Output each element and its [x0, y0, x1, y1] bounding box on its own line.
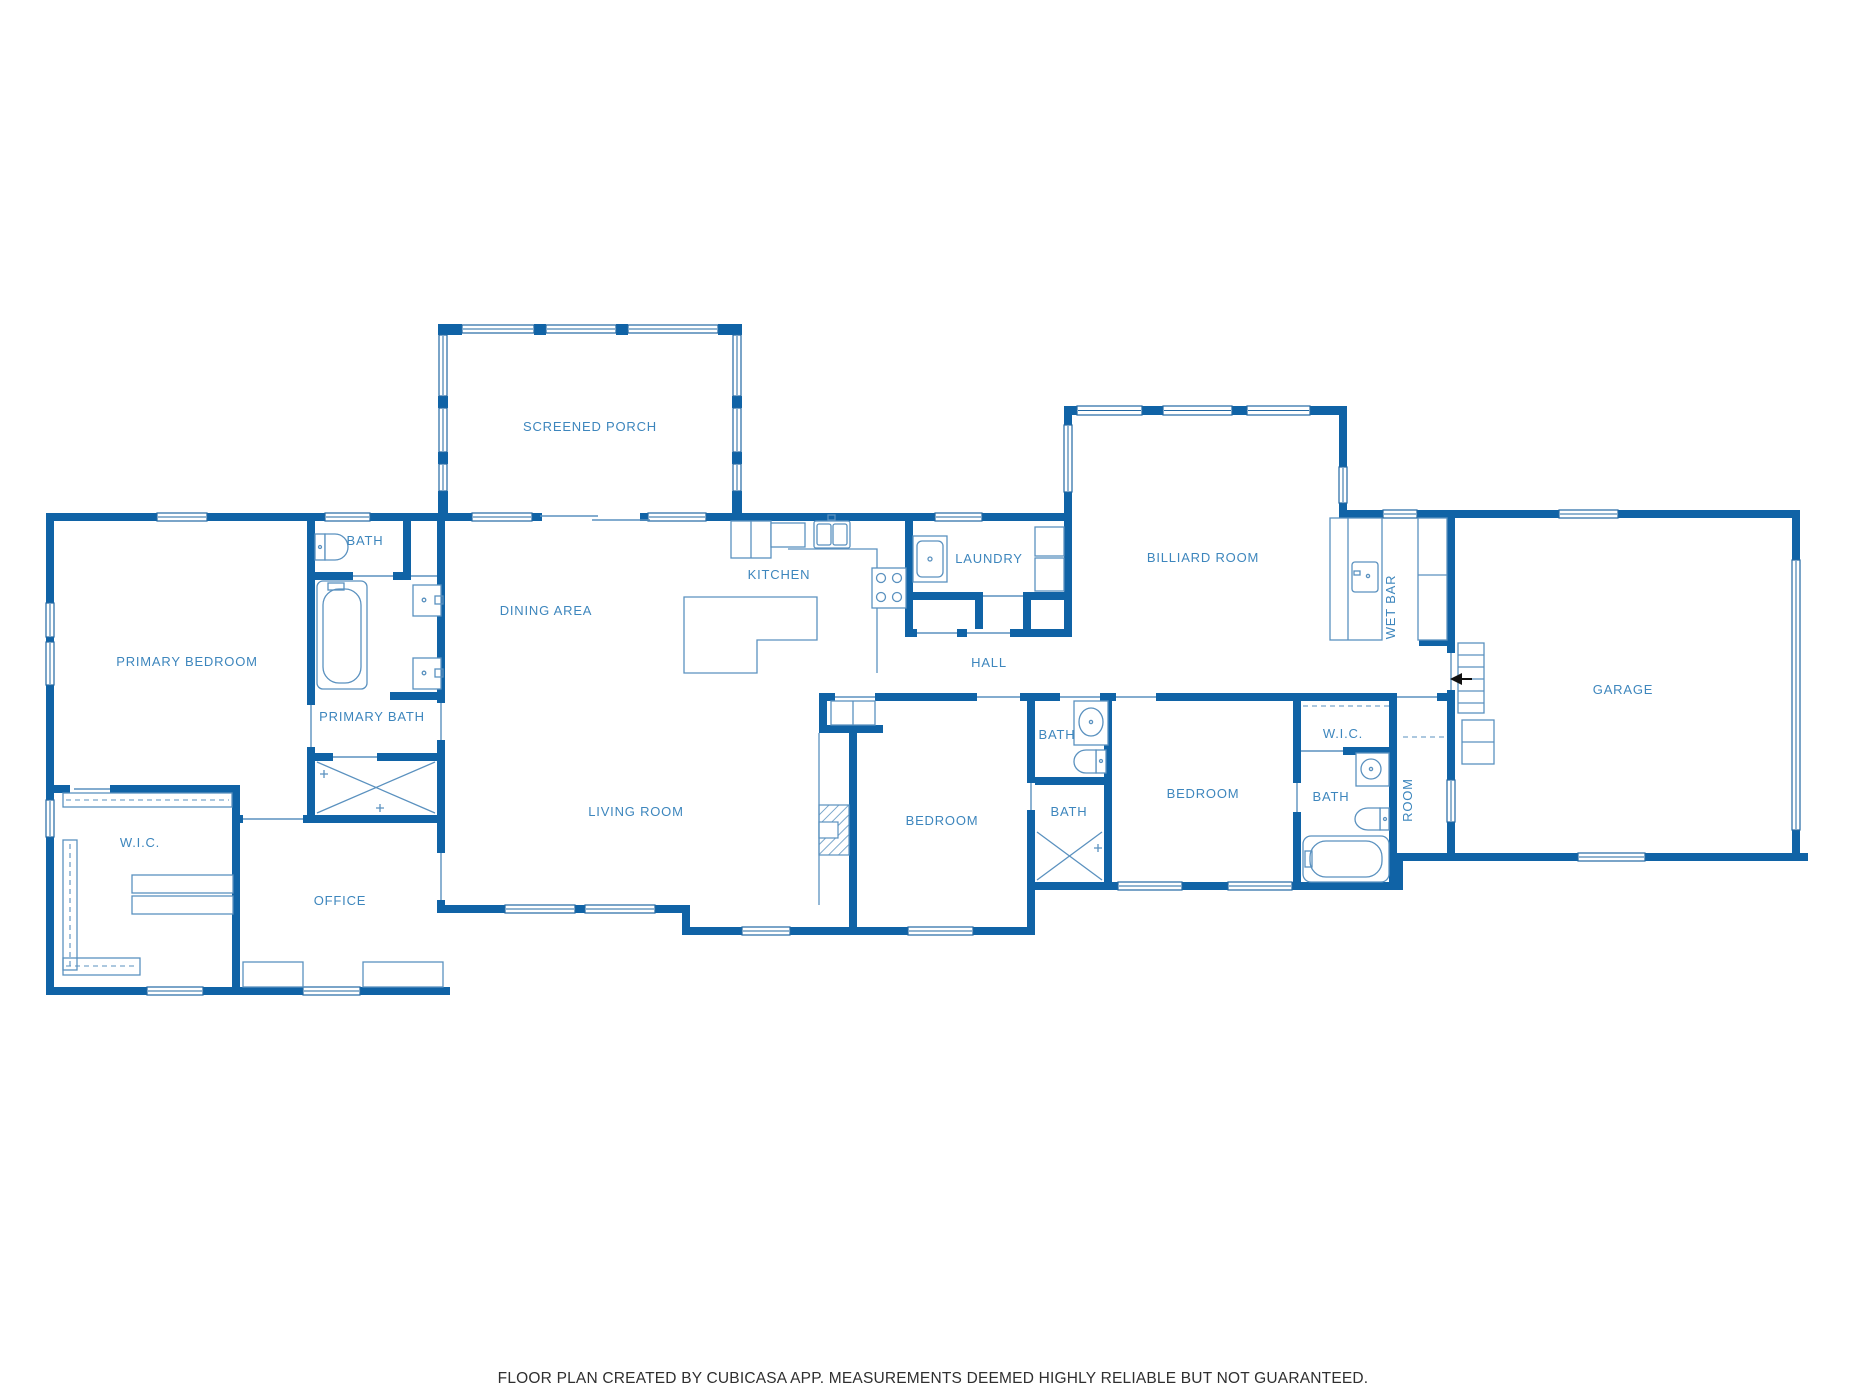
walls-layer [46, 324, 1808, 995]
wall-segment [46, 513, 54, 603]
room-label-wet-bar: WET BAR [1383, 575, 1398, 640]
wall-segment [403, 521, 411, 572]
wall-segment [975, 600, 983, 629]
room-label-garage: GARAGE [1593, 682, 1653, 697]
wall-segment [1064, 406, 1077, 415]
wall-segment [1645, 853, 1808, 861]
wall-segment [307, 521, 315, 705]
wall-segment [1347, 510, 1383, 518]
wall-segment [1100, 693, 1116, 701]
wall-segment [1156, 693, 1397, 701]
wall-segment [1403, 853, 1578, 861]
wall-segment [1310, 406, 1347, 415]
sink-icon [1356, 753, 1389, 786]
wall-segment [819, 725, 883, 733]
wall-segment [732, 396, 742, 408]
kitchen-counter [788, 549, 877, 568]
wall-segment [207, 513, 325, 521]
dryer-icon [1035, 527, 1064, 556]
wet-bar-cabinet [1418, 518, 1447, 640]
room-label-bath-hall: BATH [1039, 727, 1076, 742]
wall-segment [732, 452, 742, 464]
wall-segment [1292, 882, 1403, 890]
room-label-primary-bath: PRIMARY BATH [319, 709, 425, 724]
wall-segment [742, 513, 935, 521]
wall-segment [54, 785, 70, 793]
wall-segment [438, 324, 462, 335]
wall-segment [1064, 492, 1072, 521]
footer-disclaimer: FLOOR PLAN CREATED BY CUBICASA APP. MEAS… [498, 1370, 1369, 1387]
wall-segment [1142, 406, 1163, 415]
wall-segment [849, 733, 857, 935]
room-label-hall: HALL [971, 655, 1007, 670]
wall-segment [1417, 510, 1559, 518]
wall-segment [445, 905, 505, 913]
room-label-office: OFFICE [314, 893, 366, 908]
wall-segment [1293, 812, 1301, 890]
wall-segment [438, 396, 448, 408]
wet-bar-counter [1330, 518, 1382, 640]
wall-segment [1389, 701, 1397, 890]
wall-segment [1293, 701, 1301, 783]
closet-shelf [63, 793, 233, 975]
wall-segment [1027, 701, 1035, 783]
wall-segment [437, 823, 445, 853]
wall-segment [303, 815, 315, 823]
wall-segment [393, 572, 411, 580]
wall-segment [1447, 701, 1455, 780]
wall-segment [46, 685, 54, 800]
wall-segment [718, 324, 742, 335]
wall-segment [532, 513, 542, 521]
room-label-living-room: LIVING ROOM [588, 804, 683, 819]
wall-segment [1064, 521, 1072, 637]
wall-segment [1064, 415, 1072, 425]
wall-segment [46, 513, 157, 521]
room-label-bath-primary-hall: BATH [347, 533, 384, 548]
wall-segment [732, 491, 742, 513]
wall-segment [203, 987, 303, 995]
wall-segment [46, 987, 147, 995]
wall-segment [1010, 629, 1072, 637]
bathtub-icon [1303, 836, 1389, 882]
sink-icon [413, 658, 443, 689]
kitchen-island [684, 597, 817, 673]
wall-segment [1339, 503, 1347, 518]
wall-segment [982, 513, 1072, 521]
shower-icon [317, 762, 435, 813]
wall-segment [706, 513, 742, 521]
sink-icon [1074, 701, 1108, 745]
room-label-kitchen: KITCHEN [748, 567, 811, 582]
floor-plan: SCREENED PORCH BATH PRIMARY BEDROOM PRIM… [0, 0, 1866, 1400]
room-label-dining-area: DINING AREA [500, 603, 593, 618]
wall-segment [370, 513, 472, 521]
wall-segment [1339, 415, 1347, 467]
wall-segment [437, 900, 445, 913]
wall-segment [46, 637, 54, 642]
wall-segment [377, 753, 445, 761]
room-label-bath-2: BATH [1313, 789, 1350, 804]
sink-icon [413, 585, 443, 616]
wall-segment [1447, 690, 1455, 701]
wall-segment [1792, 518, 1800, 560]
kitchen-cabinet [771, 523, 805, 547]
wall-segment [1232, 406, 1247, 415]
room-label-billiard-room: BILLIARD ROOM [1147, 550, 1259, 565]
wall-segment [682, 927, 742, 935]
toilet-icon [1074, 750, 1106, 773]
wall-segment [575, 905, 585, 913]
wall-segment [315, 572, 353, 580]
wall-segment [905, 629, 917, 637]
office-cabinet [363, 962, 443, 987]
room-label-bedroom-1: BEDROOM [906, 813, 979, 828]
fixtures-layer [63, 515, 1494, 987]
office-cabinet [243, 962, 303, 987]
floor-plan-page: SCREENED PORCH BATH PRIMARY BEDROOM PRIM… [0, 0, 1866, 1400]
wall-segment [1035, 777, 1112, 785]
wall-segment [46, 837, 54, 995]
room-label-room: ROOM [1400, 778, 1415, 822]
wall-segment [973, 927, 1035, 935]
wall-segment [1182, 882, 1228, 890]
wall-segment [616, 324, 628, 335]
wall-segment [438, 452, 448, 464]
wall-segment [534, 324, 546, 335]
wall-segment [1027, 882, 1118, 890]
wall-segment [875, 693, 977, 701]
laundry-cabinet [1035, 558, 1064, 591]
wall-segment [1618, 510, 1800, 518]
stove-icon [872, 568, 906, 608]
wall-segment [360, 987, 450, 995]
wall-segment [437, 740, 445, 818]
wall-segment [315, 753, 333, 761]
room-label-screened-porch: SCREENED PORCH [523, 419, 657, 434]
room-label-bedroom-2: BEDROOM [1167, 786, 1240, 801]
wall-segment [390, 692, 445, 700]
wall-segment [438, 491, 448, 513]
wall-segment [1447, 510, 1455, 653]
wall-segment [307, 747, 315, 822]
bathtub-icon [317, 581, 367, 689]
wall-segment [1792, 830, 1800, 861]
wall-segment [110, 785, 232, 793]
water-heater-icon [1462, 720, 1494, 764]
wall-segment [913, 592, 983, 600]
room-label-wic-2: W.I.C. [1323, 726, 1363, 741]
wall-segment [1023, 592, 1064, 600]
wall-segment [957, 629, 967, 637]
wall-segment [1023, 600, 1031, 629]
wall-segment [1447, 822, 1455, 861]
washer-icon [913, 536, 947, 582]
room-label-laundry: LAUNDRY [955, 551, 1023, 566]
room-label-bath-ensuite-1: BATH [1051, 804, 1088, 819]
shower-icon [1037, 832, 1102, 880]
room-label-wic-primary: W.I.C. [120, 835, 160, 850]
toilet-icon [1355, 808, 1389, 830]
room-label-primary-bedroom: PRIMARY BEDROOM [116, 654, 258, 669]
wall-segment [1027, 810, 1035, 935]
toilet-icon [315, 534, 348, 560]
wall-segment [1020, 693, 1060, 701]
fireplace-icon [819, 805, 849, 855]
wall-segment [315, 815, 445, 823]
